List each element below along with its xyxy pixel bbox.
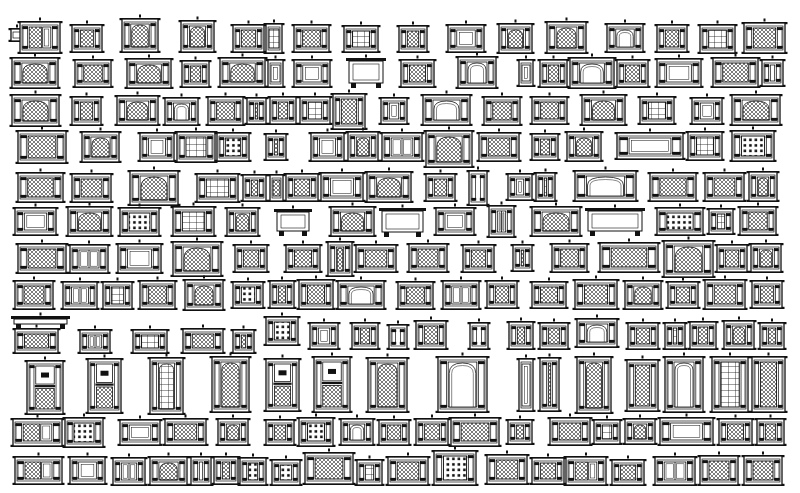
cad-block [497,20,535,55]
cad-block [13,277,56,311]
cad-block [511,241,535,273]
cad-block [638,93,677,126]
cad-block [424,170,458,203]
cad-block [18,18,63,55]
cad-block [698,452,741,487]
cad-block [477,129,522,163]
cad-block [264,355,302,413]
cad-block [231,278,266,310]
cad-block [13,325,61,355]
cad-block [138,277,178,311]
cad-block [456,53,499,90]
cad-block [308,319,341,351]
cad-block [399,56,437,89]
cad-block [742,19,788,55]
cad-block [61,278,100,311]
cad-block [380,129,425,163]
cad-block [181,325,226,355]
cad-block [303,449,356,486]
cad-block [11,313,70,330]
cad-block [183,276,226,312]
cad-block [710,353,751,414]
cad-block [331,90,368,131]
cad-block [218,54,268,89]
cad-block [530,130,561,162]
cad-block [297,414,336,448]
cad-block [268,171,286,203]
cad-block [615,129,686,161]
cad-block [432,447,479,487]
cad-block [346,128,381,163]
cad-block [396,278,436,311]
cad-block [573,276,620,311]
cad-block [25,357,66,416]
cad-block [545,18,589,55]
cad-block [268,277,297,310]
cad-blocks-layer [9,15,788,487]
cad-block [336,277,387,311]
cad-block [414,317,449,351]
cad-block [329,203,377,238]
cad-block [750,353,788,414]
cad-block [245,94,269,126]
cad-block [615,56,651,89]
cad-block [231,21,267,54]
cad-block [309,129,347,163]
cad-block [487,202,517,239]
cad-block [397,22,430,54]
cad-block [163,415,209,447]
cad-block [101,278,135,311]
cad-block [738,203,779,237]
cad-block [461,241,497,274]
cad-block [379,205,426,238]
cad-block [517,56,536,88]
cad-block [326,238,355,278]
cad-block [538,56,570,89]
cad-block [66,203,114,238]
cad-block [715,241,750,274]
cad-block [148,453,190,487]
cad-block [10,91,62,128]
cad-block [482,93,523,127]
cad-block [73,56,114,89]
cad-block [434,204,477,237]
cad-block [485,451,530,486]
cad-block [377,416,412,447]
cad-block [717,415,755,447]
cad-block [319,169,366,203]
cad-block [195,170,241,204]
cad-block [565,128,604,163]
cad-block [292,56,333,89]
cad-block [264,20,285,55]
cad-block [13,204,59,237]
cad-block [534,169,558,203]
cad-block [175,128,218,164]
cad-block [758,319,787,351]
cad-block [241,171,269,203]
cad-block [658,414,716,447]
cad-block [623,415,658,446]
cad-block [507,318,536,351]
cad-block [414,415,451,447]
cad-block [760,56,786,88]
cad-block [530,278,569,310]
cad-block [231,326,257,355]
cad-block [268,93,299,126]
cad-block [750,277,785,310]
cad-block [171,238,224,278]
cad-block [206,93,246,127]
cad-block [436,353,490,414]
cad-block [233,241,270,274]
cad-block [264,130,289,162]
cad-block [128,167,181,207]
cad-block [575,315,620,349]
cad-block [703,169,747,203]
cad-block [120,15,161,54]
cad-block [564,453,609,487]
cad-block [530,454,567,486]
cad-block [449,414,502,448]
cad-block [116,240,164,275]
cad-block [655,55,704,89]
cad-block [270,456,303,487]
cad-block [655,204,706,237]
cad-block [16,240,69,275]
cad-block [568,54,617,90]
cad-block [626,319,661,351]
cad-block [648,169,699,203]
cad-block [386,453,431,487]
cad-block [366,354,410,414]
cad-block [655,21,690,54]
cad-block [530,93,570,126]
cad-block [115,92,161,127]
cad-block [292,21,332,54]
cad-block [538,319,571,351]
cad-block [730,91,783,127]
cad-block [730,127,777,163]
cad-block [284,241,323,274]
cad-block [424,127,475,169]
cad-block [530,203,583,238]
cad-block [421,91,473,127]
cad-block [517,355,536,413]
cad-block [749,240,784,274]
cad-sheet [0,0,800,493]
cad-block [284,170,321,203]
cad-block [180,57,212,89]
cad-block [215,129,252,163]
cad-block [11,415,65,448]
cad-block [264,416,297,447]
cad-block [86,355,124,415]
cad-block [63,414,106,449]
cad-block [68,453,108,486]
cad-block [225,204,261,238]
cad-block [707,205,736,236]
cad-block [755,415,787,447]
cad-block [387,321,410,351]
cad-block [548,414,593,447]
cad-block [189,453,214,487]
cad-block [78,326,113,355]
cad-block [550,240,590,274]
cad-block [506,170,535,202]
cad-block [365,168,414,204]
cad-block [350,319,381,351]
cad-block [274,206,312,237]
cad-block [298,93,333,126]
cad-block [379,94,410,126]
cad-block [339,415,376,447]
cad-block [592,416,623,446]
cad-block [266,56,286,89]
cad-block [742,452,785,487]
cad-block [666,278,701,310]
cad-block [690,94,725,126]
cad-block [407,240,450,274]
cad-block [663,319,688,351]
cad-block [131,326,170,355]
cad-block [598,239,661,274]
cad-block [506,416,535,446]
cad-block [179,17,217,54]
cad-block [212,453,241,486]
cad-block [688,318,719,351]
cad-block [575,353,614,415]
cad-block [210,353,252,414]
cad-block [610,456,647,487]
cad-canvas [0,0,800,493]
cad-block [585,205,645,237]
cad-block [446,21,487,54]
cad-block [722,317,757,351]
cad-block [171,203,217,238]
cad-block [16,127,69,165]
cad-block [653,453,698,487]
cad-block [70,170,114,204]
cad-block [467,167,490,207]
cad-block [216,415,251,447]
cad-block [312,353,353,414]
cad-block [485,277,520,310]
cad-block [346,55,386,89]
cad-block [238,454,269,487]
cad-block [468,319,491,351]
cad-block [623,277,664,311]
cad-block [663,353,706,414]
cad-block [148,354,186,416]
cad-block [686,128,725,162]
cad-block [297,276,336,311]
cad-block [625,356,661,413]
cad-block [10,54,61,90]
cad-block [355,456,385,487]
cad-block [264,313,301,347]
cad-block [13,453,65,486]
cad-block [441,277,482,311]
cad-block [118,416,163,447]
cad-block [125,55,174,90]
cad-block [711,54,761,89]
cad-block [580,91,628,127]
cad-block [68,241,111,275]
cad-block [538,354,562,413]
cad-block [342,22,381,54]
cad-block [354,241,399,274]
cad-block [111,454,148,487]
cad-block [573,167,639,203]
cad-block [747,168,780,203]
cad-block [138,129,177,163]
cad-block [163,94,201,127]
cad-block [118,204,162,238]
cad-block [80,128,122,164]
cad-block [605,20,646,54]
cad-block [16,169,66,204]
cad-block [698,21,738,55]
cad-block [703,276,748,311]
cad-block [70,21,105,54]
cad-block [70,93,104,127]
cad-block [662,237,716,279]
